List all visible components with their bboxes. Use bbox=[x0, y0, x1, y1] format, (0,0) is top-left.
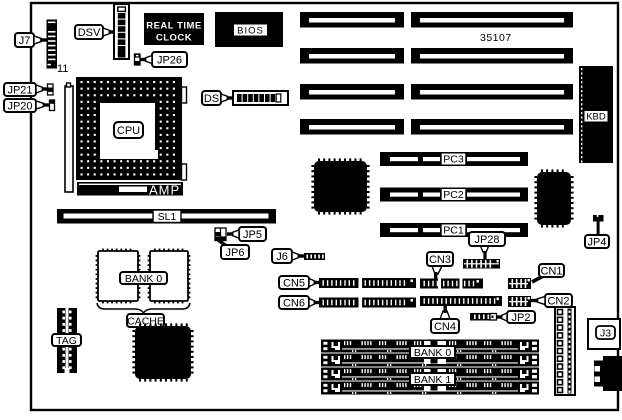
svg-text:DS: DS bbox=[204, 93, 219, 105]
svg-text:JP28: JP28 bbox=[474, 234, 499, 246]
svg-text:BIOS: BIOS bbox=[237, 26, 264, 37]
svg-text:PC2: PC2 bbox=[443, 189, 464, 201]
svg-text:35107: 35107 bbox=[480, 32, 512, 44]
svg-text:JP20: JP20 bbox=[7, 100, 32, 112]
svg-text:J6: J6 bbox=[276, 251, 288, 263]
svg-text:TAG: TAG bbox=[56, 335, 77, 347]
svg-text:PC1: PC1 bbox=[443, 224, 464, 236]
svg-text:BANK 1: BANK 1 bbox=[414, 374, 452, 386]
svg-text:J7: J7 bbox=[19, 35, 31, 47]
svg-text:BANK 0: BANK 0 bbox=[414, 347, 452, 359]
svg-text:SL1: SL1 bbox=[158, 211, 177, 223]
svg-text:CN3: CN3 bbox=[429, 254, 451, 266]
svg-text:JP5: JP5 bbox=[243, 229, 262, 241]
svg-text:JP4: JP4 bbox=[588, 236, 607, 248]
svg-text:JP2: JP2 bbox=[512, 312, 531, 324]
svg-text:CN6: CN6 bbox=[283, 297, 305, 309]
svg-text:CN1: CN1 bbox=[540, 265, 562, 277]
svg-text:PC3: PC3 bbox=[443, 153, 464, 165]
svg-text:CN5: CN5 bbox=[283, 277, 305, 289]
svg-text:CN2: CN2 bbox=[547, 295, 569, 307]
svg-text:REAL TIME: REAL TIME bbox=[146, 21, 202, 32]
svg-text:JP26: JP26 bbox=[157, 54, 182, 66]
svg-text:11: 11 bbox=[57, 63, 68, 75]
svg-text:BANK 0: BANK 0 bbox=[125, 273, 163, 285]
svg-text:JP6: JP6 bbox=[226, 247, 245, 259]
svg-text:J3: J3 bbox=[600, 328, 611, 340]
svg-text:DSV: DSV bbox=[78, 27, 101, 39]
svg-text:KBD: KBD bbox=[586, 112, 606, 123]
svg-text:JP21: JP21 bbox=[7, 84, 32, 96]
svg-text:AMP: AMP bbox=[149, 183, 180, 198]
svg-text:CPU: CPU bbox=[117, 125, 140, 137]
svg-text:CN4: CN4 bbox=[434, 321, 456, 333]
svg-text:CLOCK: CLOCK bbox=[156, 33, 192, 44]
